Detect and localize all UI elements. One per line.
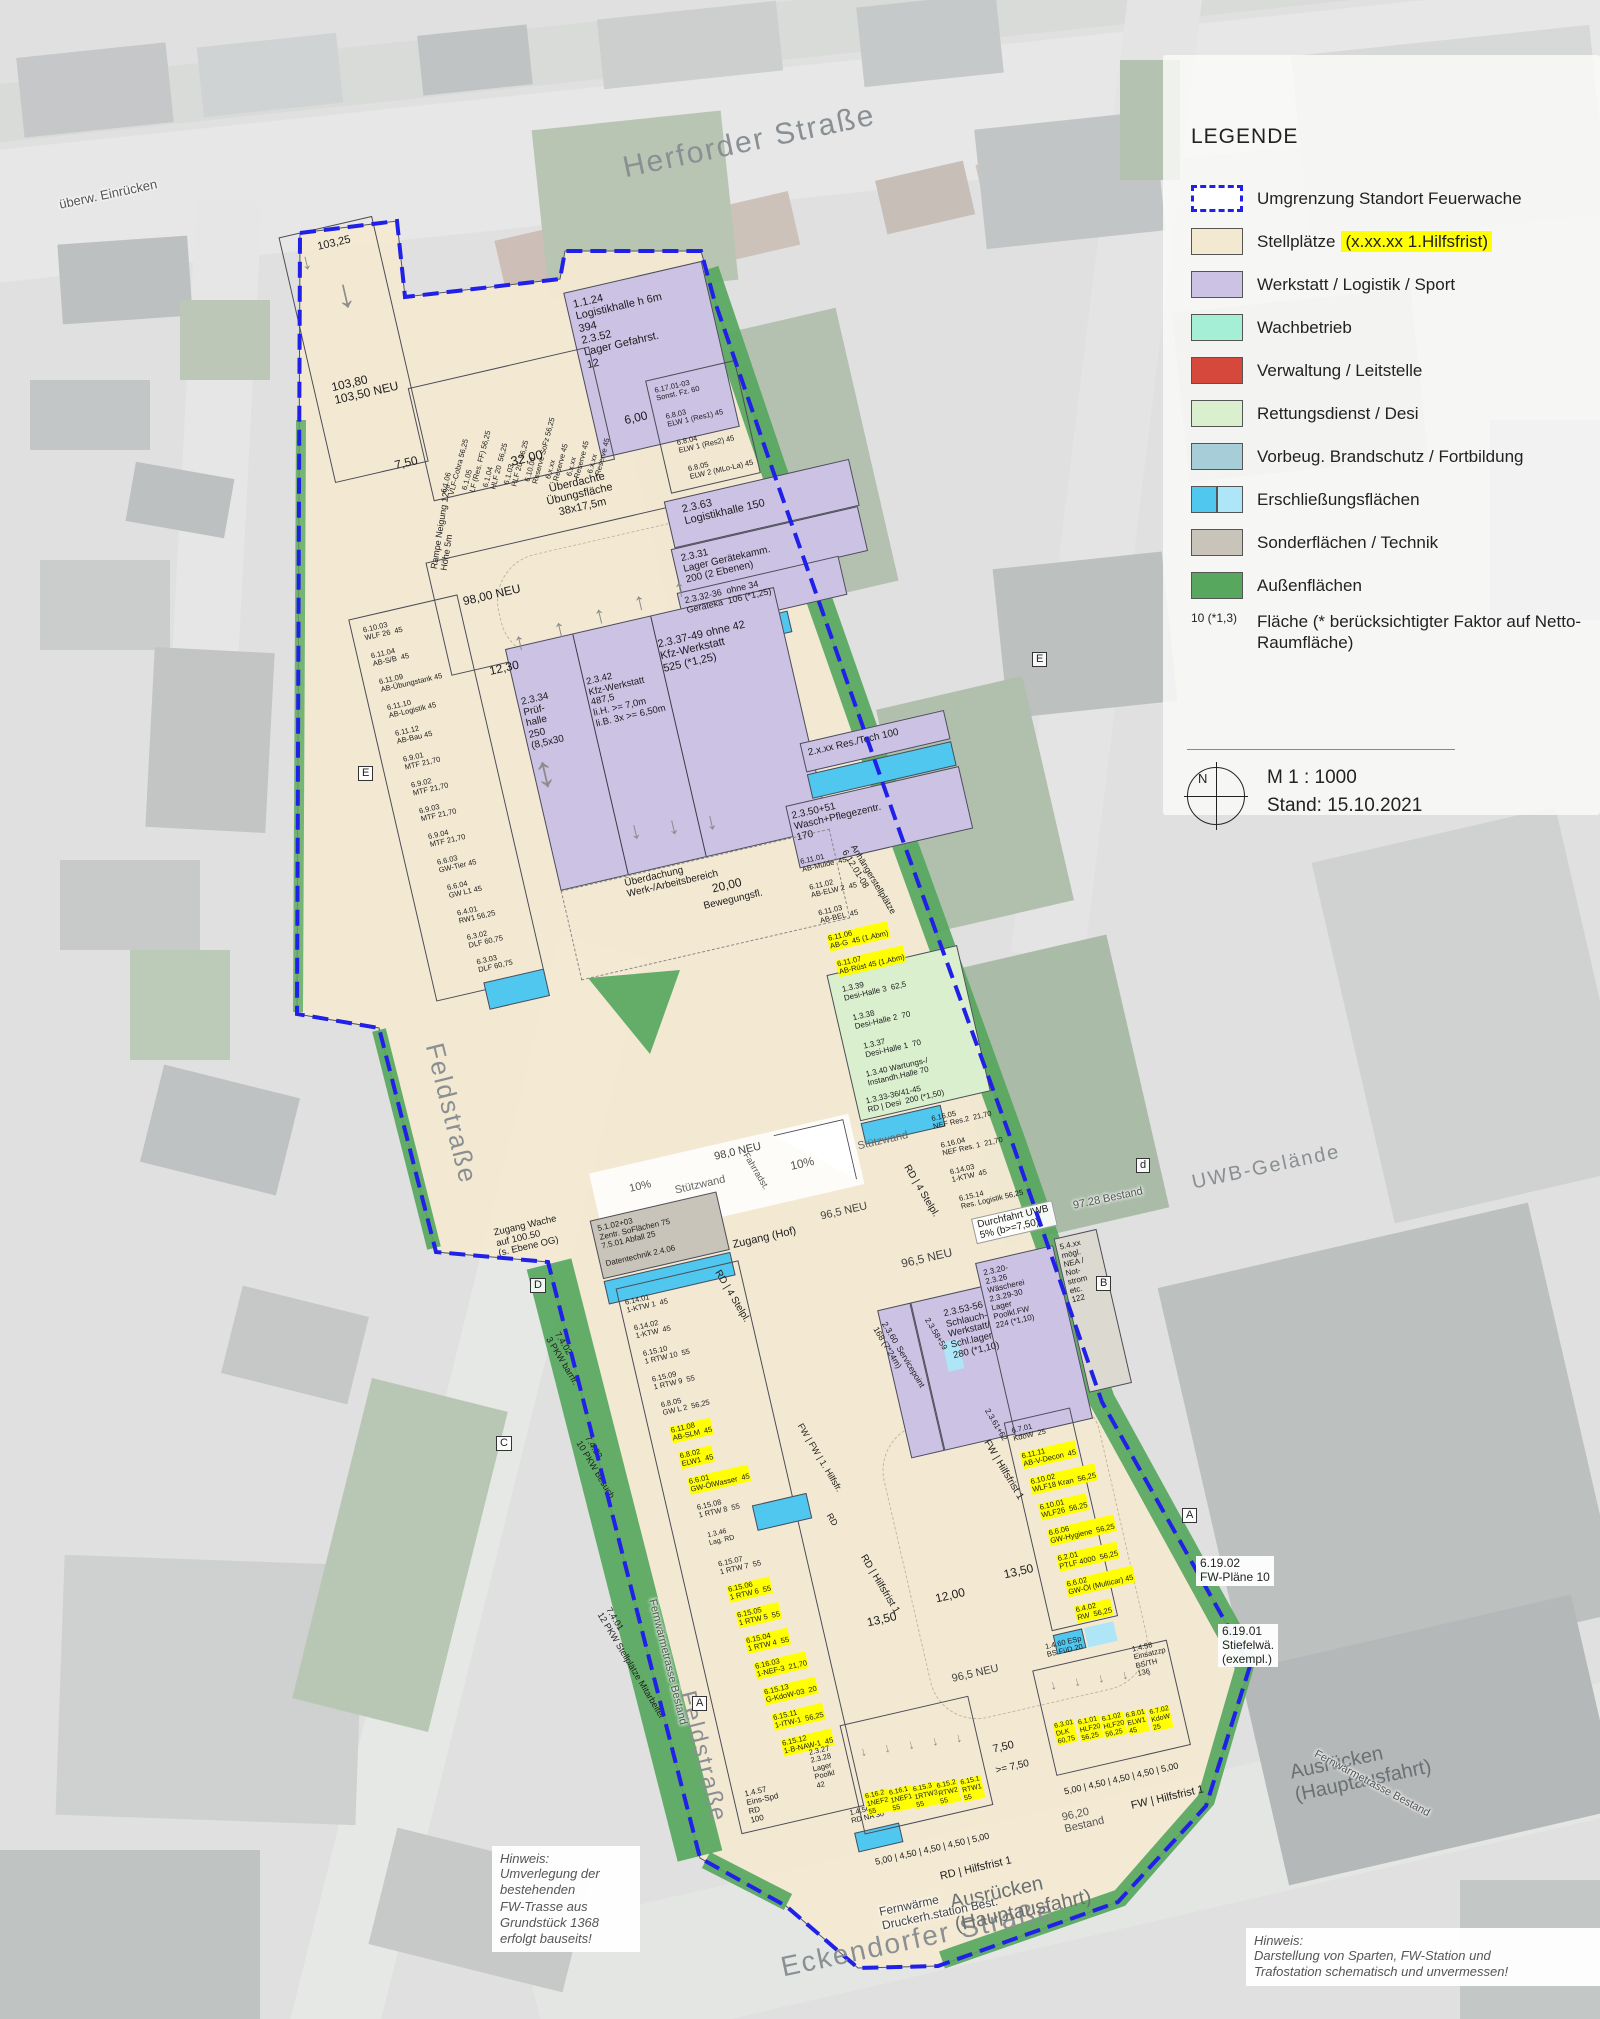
site-plan-screenshot: 103,25↓↓103,80 103,50 NEU7,501.1.24 Logi…	[0, 0, 1600, 2019]
legend-item-label: Rettungsdienst / Desi	[1257, 403, 1419, 424]
legend-item-label: Vorbeug. Brandschutz / Fortbildung	[1257, 446, 1524, 467]
compass-horizontal-line	[1184, 796, 1248, 797]
legend-title: LEGENDE	[1191, 125, 1298, 149]
legend-swatch	[1191, 400, 1243, 427]
note-title: Hinweis:	[500, 1851, 632, 1866]
legend-item-3: Wachbetrieb	[1191, 306, 1586, 349]
map-label: d	[1136, 1158, 1150, 1173]
map-label: 6.19.02 FW-Pläne 10	[1196, 1556, 1274, 1586]
legend-item-label: Sonderflächen / Technik	[1257, 532, 1438, 553]
legend-rows: Umgrenzung Standort FeuerwacheStellplätz…	[1191, 177, 1586, 673]
legend-item-0: Umgrenzung Standort Feuerwache	[1191, 177, 1586, 220]
legend-date: Stand: 15.10.2021	[1267, 795, 1422, 817]
legend-item-label: Werkstatt / Logistik / Sport	[1257, 274, 1455, 295]
legend-item-label: Fläche (* berücksichtigter Faktor auf Ne…	[1257, 611, 1586, 654]
legend-item-label: Wachbetrieb	[1257, 317, 1352, 338]
note-sparten: Hinweis: Darstellung von Sparten, FW-Sta…	[1246, 1928, 1600, 1986]
legend-swatch	[1191, 443, 1243, 470]
legend-item-label: Umgrenzung Standort Feuerwache	[1257, 188, 1522, 209]
legend-swatch	[1191, 357, 1243, 384]
legend-area-factor: 10 (*1,3)	[1191, 611, 1243, 625]
legend-item-5: Rettungsdienst / Desi	[1191, 392, 1586, 435]
north-compass-icon: N	[1187, 767, 1245, 825]
legend-swatch-dual	[1191, 486, 1243, 513]
legend-item-9: Außenflächen	[1191, 564, 1586, 607]
legend-item-2: Werkstatt / Logistik / Sport	[1191, 263, 1586, 306]
legend-item-label: Stellplätze(x.xx.xx 1.Hilfsfrist)	[1257, 231, 1492, 252]
legend-panel: LEGENDE Umgrenzung Standort FeuerwacheSt…	[1163, 55, 1600, 815]
legend-swatch	[1191, 228, 1243, 255]
legend-item-suffix: (x.xx.xx 1.Hilfsfrist)	[1341, 231, 1492, 252]
map-label: E	[1032, 652, 1047, 667]
legend-scale: M 1 : 1000	[1267, 767, 1357, 789]
legend-item-7: Erschließungsflächen	[1191, 478, 1586, 521]
map-label: B	[1096, 1276, 1111, 1291]
note-fw-trasse: Hinweis: Umverlegung der bestehenden FW-…	[492, 1846, 640, 1952]
legend-item-1: Stellplätze(x.xx.xx 1.Hilfsfrist)	[1191, 220, 1586, 263]
legend-item-label: Erschließungsflächen	[1257, 489, 1420, 510]
map-label: A	[692, 1696, 707, 1711]
legend-item-10: 10 (*1,3)Fläche (* berücksichtigter Fakt…	[1191, 607, 1586, 673]
legend-divider	[1187, 749, 1455, 750]
legend-item-6: Vorbeug. Brandschutz / Fortbildung	[1191, 435, 1586, 478]
map-label: E	[358, 766, 373, 781]
map-label: A	[1182, 1508, 1197, 1523]
note-body: Darstellung von Sparten, FW-Station und …	[1254, 1948, 1600, 1981]
compass-north-label: N	[1198, 771, 1207, 786]
legend-swatch	[1191, 572, 1243, 599]
legend-swatch	[1191, 314, 1243, 341]
legend-swatch	[1191, 271, 1243, 298]
note-body: Umverlegung der bestehenden FW-Trasse au…	[500, 1866, 632, 1947]
map-label: 6.19.01 Stiefelwä. (exempl.)	[1218, 1624, 1278, 1667]
legend-item-4: Verwaltung / Leitstelle	[1191, 349, 1586, 392]
legend-swatch-boundary	[1191, 185, 1243, 212]
legend-swatch	[1191, 529, 1243, 556]
legend-item-8: Sonderflächen / Technik	[1191, 521, 1586, 564]
legend-item-label: Außenflächen	[1257, 575, 1362, 596]
map-label: C	[496, 1436, 512, 1451]
map-label: D	[530, 1278, 546, 1293]
note-title: Hinweis:	[1254, 1933, 1600, 1948]
legend-item-label: Verwaltung / Leitstelle	[1257, 360, 1422, 381]
